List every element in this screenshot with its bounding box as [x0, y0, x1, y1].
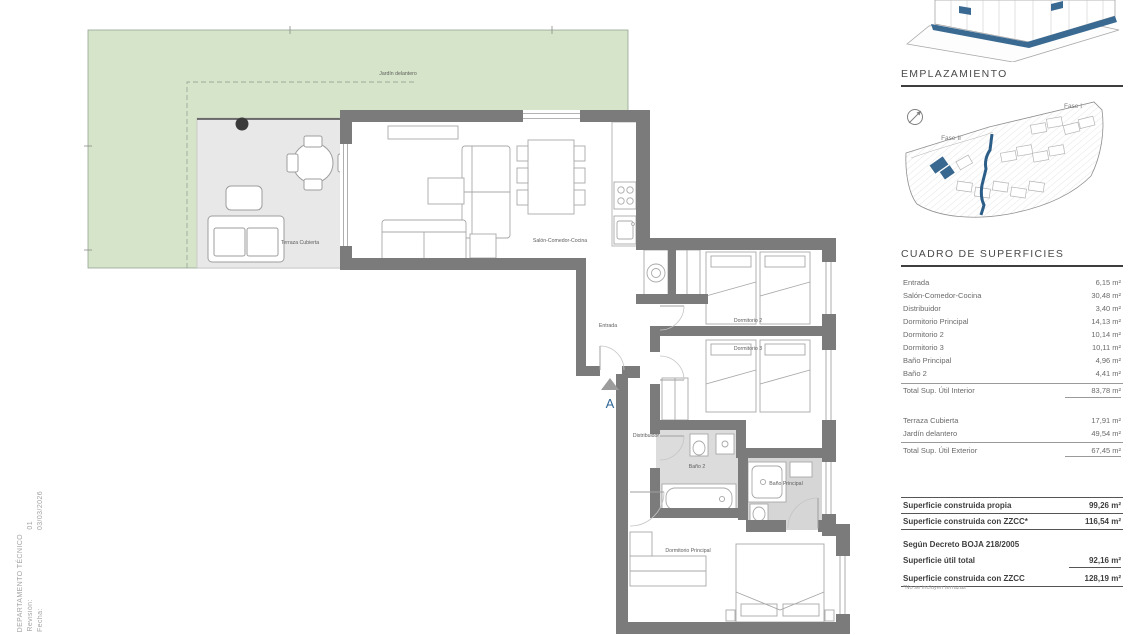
surfaces-title: CUADRO DE SUPERFICIES [901, 248, 1123, 267]
label-terrace: Terraza Cubierta [281, 240, 319, 246]
table-row: Distribuidor3,40 m² [901, 302, 1123, 315]
compass-icon [908, 110, 923, 125]
date-value: 03/03/2026 [37, 491, 44, 530]
label-garden: Jardín delantero [379, 71, 417, 77]
table-row: Salón-Comedor-Cocina30,48 m² [901, 289, 1123, 302]
table-row: Superficie útil total92,16 m² [901, 553, 1123, 571]
section-marker-a: A [606, 396, 615, 411]
label-bedroom2: Dormitorio 2 [734, 318, 762, 324]
terrace [197, 118, 352, 269]
table-row: Terraza Cubierta17,91 m² [901, 414, 1123, 427]
fase2-label: Fase II [941, 135, 961, 142]
exterior-total-row: Total Sup. Útil Exterior67,45 m² [901, 442, 1123, 460]
fase1-label: Fase I [1064, 103, 1082, 110]
info-panel: EMPLAZAMIENTO [901, 0, 1123, 635]
decree-heading: Según Decreto BOJA 218/2005 [901, 540, 1123, 549]
label-bedroom-main: Dormitorio Principal [665, 548, 710, 554]
interior-total-row: Total Sup. Útil Interior83,78 m² [901, 383, 1123, 401]
label-bath-main: Baño Principal [769, 481, 802, 487]
interior-surfaces-table: Entrada6,15 m² Salón-Comedor-Cocina30,48… [901, 276, 1123, 401]
table-row: Superficie construida propia99,26 m² [901, 498, 1123, 514]
table-row: Superficie construida con ZZCC*116,54 m² [901, 514, 1123, 529]
decree-table: Superficie útil total92,16 m² Superficie… [901, 553, 1123, 587]
emplazamiento-title: EMPLAZAMIENTO [901, 68, 1123, 87]
table-row: Entrada6,15 m² [901, 276, 1123, 289]
floor-plan: A Jardín delantero Terraza Cubierta Saló… [0, 0, 880, 635]
exterior-surfaces-table: Terraza Cubierta17,91 m² Jardín delanter… [901, 414, 1123, 460]
label-bath2: Baño 2 [689, 464, 706, 470]
department-label: DEPARTAMENTO TÉCNICO [17, 534, 24, 632]
table-row: Baño 24,41 m² [901, 368, 1123, 381]
label-hall: Distribuidor [633, 433, 660, 439]
footnote: *No se incluyen terrazas [901, 585, 1123, 591]
table-row: Dormitorio Principal14,13 m² [901, 315, 1123, 328]
built-surfaces-block: Superficie construida propia99,26 m² Sup… [901, 497, 1123, 530]
title-block: DEPARTAMENTO TÉCNICO Revisión:01 Fecha:0… [17, 424, 44, 632]
table-row: Dormitorio 210,14 m² [901, 328, 1123, 341]
table-row: Baño Principal4,96 m² [901, 355, 1123, 368]
label-living: Salón-Comedor-Cocina [533, 238, 587, 244]
date-line: Fecha:03/03/2026 [37, 491, 44, 632]
table-row: Dormitorio 310,11 m² [901, 341, 1123, 354]
label-bedroom3: Dormitorio 3 [734, 346, 762, 352]
revision-line: Revisión:01 [27, 521, 34, 632]
label-entrance: Entrada [599, 323, 617, 329]
revision-value: 01 [27, 521, 34, 530]
column [236, 118, 249, 131]
table-row: Jardín delantero49,54 m² [901, 427, 1123, 440]
building-3d-view [901, 0, 1123, 62]
site-plan-map: Fase I Fase II [901, 96, 1123, 238]
